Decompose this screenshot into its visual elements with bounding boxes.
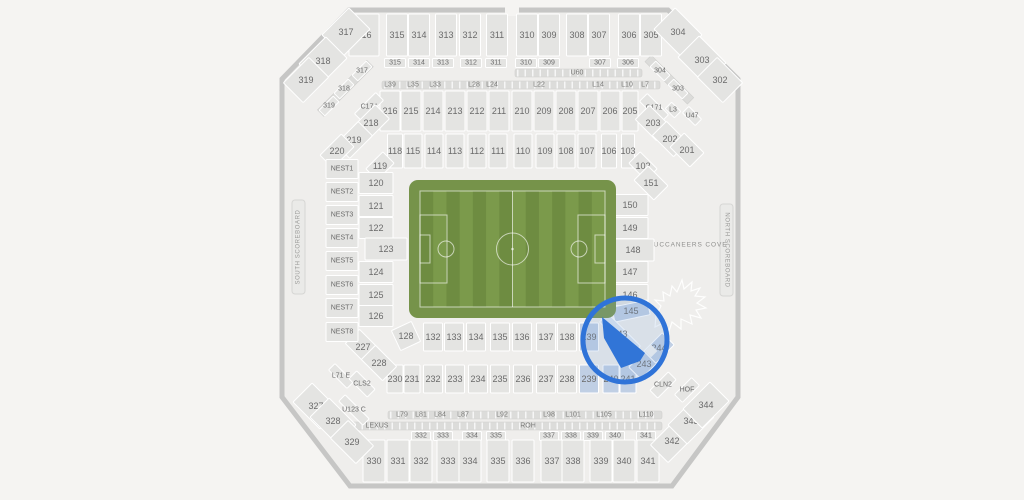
section-107[interactable] xyxy=(578,134,596,168)
selection-highlight xyxy=(583,298,667,382)
section-334[interactable] xyxy=(463,432,482,441)
section-110[interactable] xyxy=(514,134,532,168)
section-313[interactable] xyxy=(436,14,457,56)
section-310[interactable] xyxy=(517,14,538,56)
section-121[interactable] xyxy=(359,196,393,217)
section-307[interactable] xyxy=(589,14,610,56)
section-133[interactable] xyxy=(445,323,464,351)
section-233[interactable] xyxy=(446,365,465,393)
section-109[interactable] xyxy=(536,134,554,168)
section-208[interactable] xyxy=(556,91,576,131)
section-315[interactable] xyxy=(385,59,406,68)
section-235[interactable] xyxy=(491,365,510,393)
section-111[interactable] xyxy=(489,134,507,168)
section-nest5[interactable] xyxy=(326,252,358,271)
section-332[interactable] xyxy=(412,432,431,441)
section-231[interactable] xyxy=(404,365,420,393)
strip-lexus-roh xyxy=(352,422,662,430)
section-137[interactable] xyxy=(537,323,556,351)
section-337[interactable] xyxy=(540,432,559,441)
south-scoreboard-label: SOUTH SCOREBOARD xyxy=(296,209,302,284)
north-scoreboard-label: NORTH SCOREBOARD xyxy=(724,212,730,287)
section-335[interactable] xyxy=(487,432,506,441)
section-308[interactable] xyxy=(567,14,588,56)
section-336[interactable] xyxy=(512,440,534,482)
section-125[interactable] xyxy=(359,285,393,306)
section-234[interactable] xyxy=(469,365,488,393)
stadium-map-svg: SOUTH SCOREBOARD NORTH SCOREBOARD BUCCAN… xyxy=(0,0,1024,500)
section-210[interactable] xyxy=(512,91,532,131)
section-112[interactable] xyxy=(468,134,486,168)
section-338[interactable] xyxy=(562,432,581,441)
section-339[interactable] xyxy=(590,440,612,482)
section-213[interactable] xyxy=(445,91,465,131)
section-132[interactable] xyxy=(424,323,443,351)
section-212[interactable] xyxy=(467,91,487,131)
section-148[interactable] xyxy=(612,239,654,261)
section-311[interactable] xyxy=(487,14,508,56)
selection-ring xyxy=(583,298,667,382)
section-122[interactable] xyxy=(359,218,393,239)
section-149[interactable] xyxy=(612,218,648,239)
section-340[interactable] xyxy=(613,440,635,482)
section-238[interactable] xyxy=(558,365,577,393)
section-136[interactable] xyxy=(513,323,532,351)
section-313[interactable] xyxy=(433,59,454,68)
section-331[interactable] xyxy=(387,440,409,482)
section-nest8[interactable] xyxy=(326,323,358,342)
section-314[interactable] xyxy=(409,14,430,56)
section-135[interactable] xyxy=(491,323,510,351)
section-237[interactable] xyxy=(537,365,556,393)
section-134[interactable] xyxy=(467,323,486,351)
section-nest3[interactable] xyxy=(326,206,358,225)
buccaneers-cove-label: BUCCANEERS COVE xyxy=(649,242,728,249)
section-309[interactable] xyxy=(539,14,560,56)
section-333[interactable] xyxy=(434,432,453,441)
section-147[interactable] xyxy=(612,262,648,283)
section-306[interactable] xyxy=(619,14,640,56)
section-305[interactable] xyxy=(641,14,662,56)
strip-loge-top xyxy=(382,81,660,89)
section-332[interactable] xyxy=(410,440,432,482)
section-214[interactable] xyxy=(423,91,443,131)
section-338[interactable] xyxy=(562,440,584,482)
section-115[interactable] xyxy=(404,134,422,168)
section-334[interactable] xyxy=(459,440,481,482)
section-138[interactable] xyxy=(558,323,577,351)
section-nest4[interactable] xyxy=(326,229,358,248)
section-120[interactable] xyxy=(359,173,393,194)
section-307[interactable] xyxy=(590,59,611,68)
section-312[interactable] xyxy=(461,59,482,68)
soccer-field xyxy=(409,180,616,318)
section-nest1[interactable] xyxy=(326,160,358,179)
section-236[interactable] xyxy=(514,365,533,393)
section-nest2[interactable] xyxy=(326,183,358,202)
section-306[interactable] xyxy=(618,59,639,68)
section-113[interactable] xyxy=(446,134,464,168)
section-339[interactable] xyxy=(584,432,603,441)
section-215[interactable] xyxy=(401,91,421,131)
section-123[interactable] xyxy=(365,238,407,260)
section-114[interactable] xyxy=(425,134,443,168)
section-205[interactable] xyxy=(622,91,638,131)
section-126[interactable] xyxy=(359,306,393,327)
seating-chart: SOUTH SCOREBOARD NORTH SCOREBOARD BUCCAN… xyxy=(0,0,1024,500)
section-108[interactable] xyxy=(557,134,575,168)
section-337[interactable] xyxy=(541,440,563,482)
section-314[interactable] xyxy=(409,59,430,68)
section-232[interactable] xyxy=(424,365,443,393)
section-315[interactable] xyxy=(387,14,408,56)
section-124[interactable] xyxy=(359,262,393,283)
section-209[interactable] xyxy=(534,91,554,131)
section-nest6[interactable] xyxy=(326,276,358,295)
section-333[interactable] xyxy=(437,440,459,482)
section-340[interactable] xyxy=(606,432,625,441)
section-nest7[interactable] xyxy=(326,299,358,318)
section-312[interactable] xyxy=(460,14,481,56)
section-341[interactable] xyxy=(637,432,656,441)
section-106[interactable] xyxy=(602,134,617,168)
section-207[interactable] xyxy=(578,91,598,131)
section-150[interactable] xyxy=(612,195,648,216)
section-211[interactable] xyxy=(489,91,509,131)
section-335[interactable] xyxy=(487,440,509,482)
section-310[interactable] xyxy=(516,59,537,68)
section-206[interactable] xyxy=(600,91,620,131)
section-311[interactable] xyxy=(486,59,507,68)
section-309[interactable] xyxy=(539,59,560,68)
